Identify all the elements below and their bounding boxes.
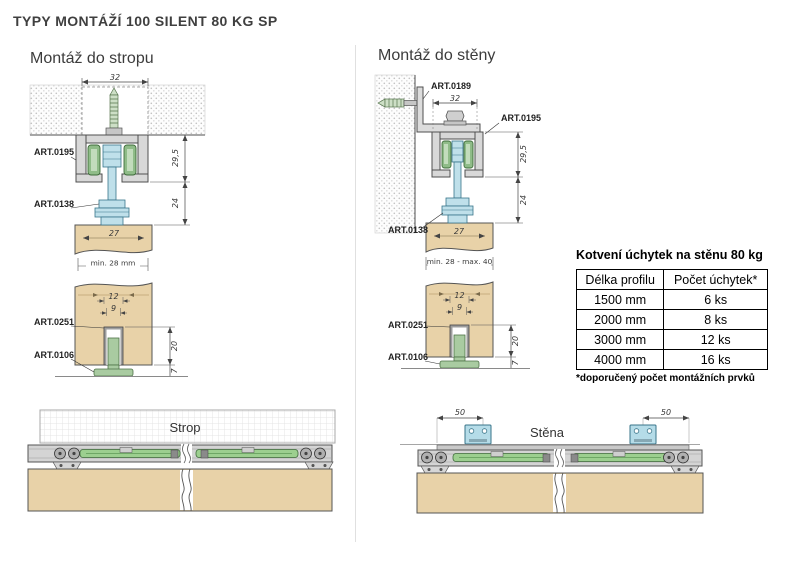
dim-track-height-group: 29,5 24 [150,135,190,225]
col-header-count: Počet úchytek* [664,270,768,290]
wall-mount-side-view: 50 50 Stěna [385,403,715,518]
dim-track-height-value: 29,5 [171,149,180,167]
anchor-table-block: Kotvení úchytek na stěnu 80 kg Délka pro… [576,248,768,384]
art-track-label: ART.0195 [501,113,541,123]
cell-count: 8 ks [664,310,768,330]
ceiling-label: Strop [169,420,200,435]
art-bracket-label: ART.0189 [431,81,471,91]
anchor-table: Délka profilu Počet úchytek* 1500 mm 6 k… [576,269,768,370]
table-row: 4000 mm 16 ks [577,350,768,370]
table-header-row: Délka profilu Počet úchytek* [577,270,768,290]
door-break [553,473,566,513]
dim-guide-height-value: 7 [170,368,179,374]
cell-length: 1500 mm [577,290,664,310]
dim-hanger-drop-value: 24 [519,195,528,205]
dim-door-min: min. 28 mm [78,258,148,271]
anchor-table-title: Kotvení úchytek na stěnu 80 kg [576,248,768,262]
dim-track-height-group: 29,5 24 [485,132,528,223]
dim-door-range: min. 28 - max. 40 [426,257,493,270]
cell-count: 6 ks [664,290,768,310]
cell-length: 4000 mm [577,350,664,370]
hanger-plates [421,466,699,473]
art-track-label: ART.0195 [34,147,74,157]
dim-bracket-left-value: 50 [455,408,465,417]
wall-label: Stěna [530,425,565,440]
dim-door-thickness-value: 27 [454,227,465,236]
door-break [180,469,193,511]
section-divider [355,45,356,542]
art-floor-guide-label: ART.0106 [388,352,428,362]
wall-anchor-screw-icon [378,99,417,107]
dim-bracket-right-value: 50 [661,408,671,417]
art-hanger-label: ART.0138 [388,225,428,235]
dim-track-height-value: 29,5 [519,145,528,163]
heading-ceiling-mount: Montáž do stropu [30,50,154,68]
table-row: 3000 mm 12 ks [577,330,768,350]
dim-groove-depth-value: 20 [170,341,179,351]
dim-top-width-value: 32 [110,73,120,82]
cell-count: 16 ks [664,350,768,370]
dim-groove-outer-value: 12 [108,292,118,301]
art-channel-label: ART.0251 [388,320,428,330]
cell-count: 12 ks [664,330,768,350]
ceiling-mount-side-view: Strop [20,405,340,517]
dim-top-width: 32 [82,73,148,86]
ceiling-mount-cross-section: 32 [10,72,215,384]
dim-groove-outer-value: 12 [454,291,464,300]
dim-door-range-value: min. 28 - max. 40 [427,257,493,266]
clamp-bolt [444,111,466,125]
dim-top-width-value: 32 [450,94,460,103]
dim-groove-depth-value: 20 [511,336,520,346]
art-track-group: ART.0195 [485,113,541,134]
page-title: TYPY MONTÁŽÍ 100 SILENT 80 KG SP [13,13,278,29]
dim-hanger-drop-value: 24 [171,198,180,208]
art-channel-label: ART.0251 [34,317,74,327]
cell-length: 2000 mm [577,310,664,330]
rail-break [554,449,565,467]
hanger-plates [53,462,333,469]
heading-wall-mount: Montáž do stěny [378,47,495,65]
art-bracket-group: ART.0189 [423,81,471,99]
table-row: 1500 mm 6 ks [577,290,768,310]
dim-guide-height-value: 7 [511,360,520,366]
wall-mount-cross-section: ART.0189 32 [358,72,558,384]
art-floor-guide-label: ART.0106 [34,350,74,360]
dim-groove-inner-value: 9 [111,304,116,313]
table-row: 2000 mm 8 ks [577,310,768,330]
dim-door-min-value: min. 28 mm [91,259,136,268]
col-header-length: Délka profilu [577,270,664,290]
dim-door-thickness-value: 27 [109,229,120,238]
page: TYPY MONTÁŽÍ 100 SILENT 80 KG SP Montáž … [0,0,800,572]
cell-length: 3000 mm [577,330,664,350]
dim-groove-inner-value: 9 [457,303,462,312]
art-hanger-label: ART.0138 [34,199,74,209]
anchor-table-footnote: *doporučený počet montážních prvků [576,373,768,384]
rail-break [181,444,192,463]
